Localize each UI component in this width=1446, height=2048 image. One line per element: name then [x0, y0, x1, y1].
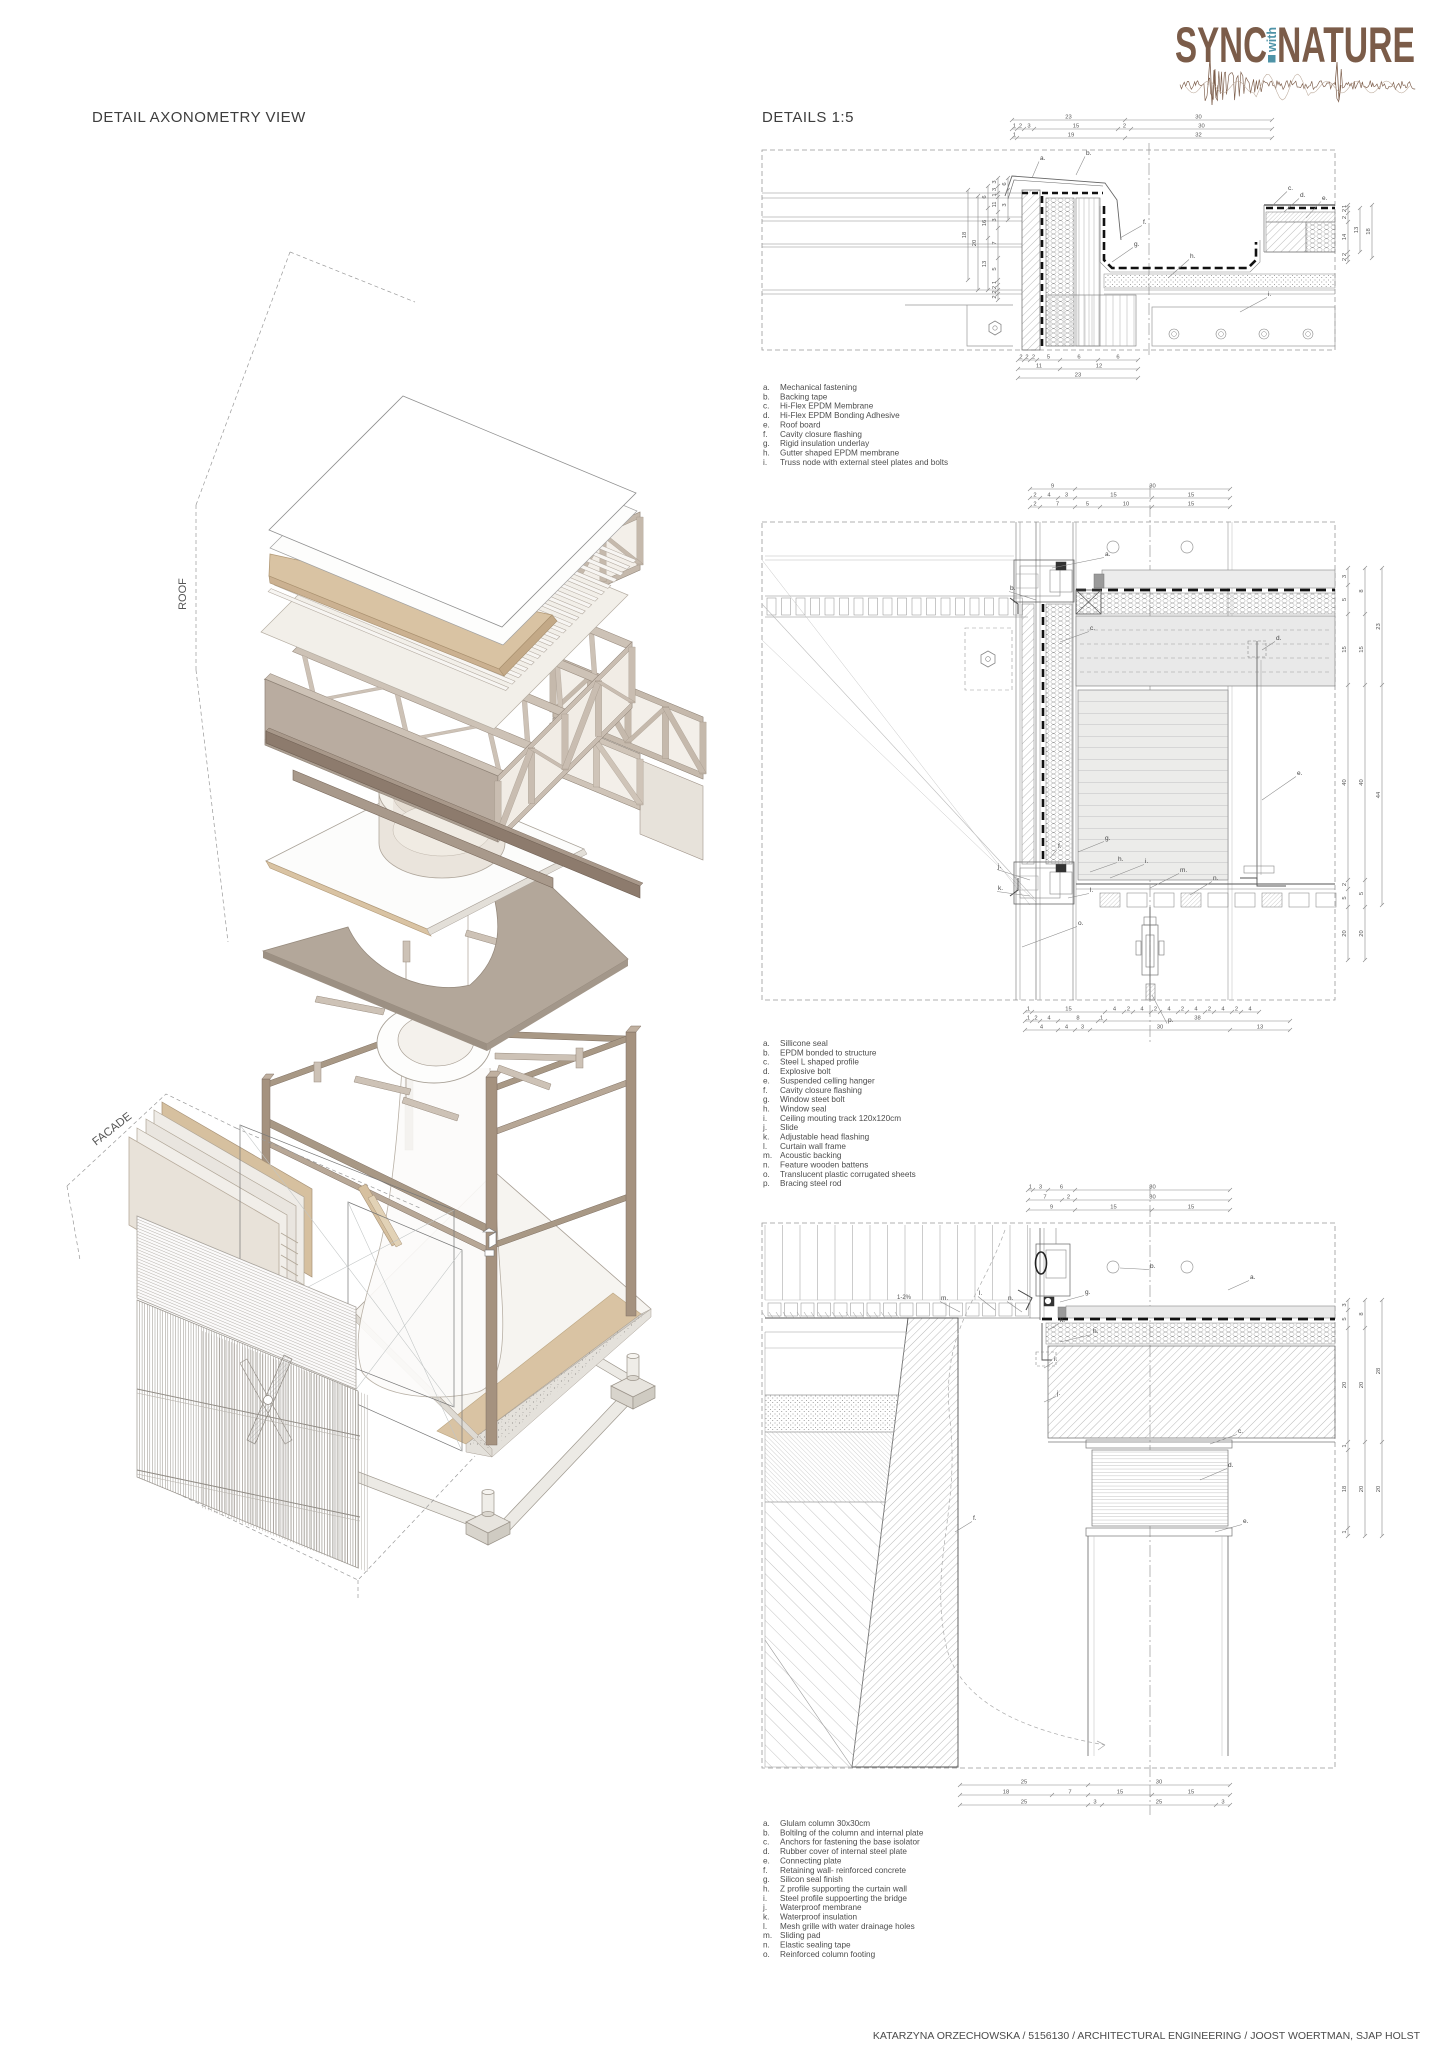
svg-text:3: 3: [992, 180, 998, 183]
svg-text:with: with: [1265, 27, 1279, 53]
svg-text:Window seal: Window seal: [780, 1105, 827, 1114]
svg-text:b.: b.: [763, 392, 770, 401]
svg-text:l.: l.: [763, 1142, 767, 1151]
svg-text:g.: g.: [1085, 1289, 1091, 1296]
svg-text:Adjustable head flashing: Adjustable head flashing: [780, 1133, 870, 1142]
svg-text:3: 3: [1002, 203, 1008, 206]
svg-text:d.: d.: [1228, 1462, 1234, 1469]
svg-text:n.: n.: [1213, 875, 1219, 882]
svg-text:Retaining wall- reinforced con: Retaining wall- reinforced concrete: [780, 1866, 907, 1875]
svg-text:20: 20: [972, 240, 978, 246]
svg-text:Ceiling mouting track 120x120c: Ceiling mouting track 120x120cm: [780, 1114, 901, 1123]
svg-text:3: 3: [992, 188, 998, 191]
svg-text:m.: m.: [763, 1931, 772, 1940]
svg-text:23: 23: [1376, 623, 1382, 629]
svg-text:a.: a.: [1250, 1274, 1256, 1281]
svg-text:30: 30: [1149, 1194, 1155, 1200]
svg-text:11: 11: [1036, 363, 1042, 369]
svg-text:30: 30: [1198, 123, 1204, 129]
svg-text:Reinforced column footing: Reinforced column footing: [780, 1950, 876, 1959]
svg-text:7: 7: [1068, 1789, 1071, 1795]
svg-text:j.: j.: [1056, 1390, 1060, 1397]
svg-text:e.: e.: [763, 420, 770, 429]
svg-text:NATURE: NATURE: [1277, 17, 1415, 73]
svg-text:2: 2: [992, 286, 998, 289]
svg-text:Curtain wall frame: Curtain wall frame: [780, 1142, 846, 1151]
svg-text:f.: f.: [1143, 219, 1147, 226]
svg-text:a.: a.: [1105, 551, 1111, 558]
svg-text:1: 1: [1100, 1015, 1103, 1021]
svg-text:i.: i.: [1145, 858, 1148, 865]
svg-text:7: 7: [1056, 501, 1059, 507]
svg-text:b.: b.: [1086, 150, 1092, 157]
svg-text:1: 1: [1013, 132, 1016, 138]
svg-text:5: 5: [1342, 896, 1348, 899]
svg-text:o.: o.: [763, 1170, 770, 1179]
svg-text:13: 13: [1257, 1024, 1263, 1030]
svg-text:1: 1: [1027, 1006, 1030, 1012]
svg-text:g.: g.: [1134, 241, 1140, 248]
svg-text:Bracing steel rod: Bracing steel rod: [780, 1179, 842, 1188]
svg-text:DETAIL AXONOMETRY VIEW: DETAIL AXONOMETRY VIEW: [92, 109, 306, 126]
svg-text:23: 23: [1075, 372, 1081, 378]
svg-text:g.: g.: [763, 439, 770, 448]
svg-text:Roof board: Roof board: [780, 420, 821, 429]
svg-text:14: 14: [1342, 233, 1348, 240]
svg-text:Z profile supporting the curta: Z profile supporting the curtain wall: [780, 1885, 907, 1894]
svg-text:10: 10: [1123, 501, 1129, 507]
svg-text:6: 6: [1060, 1184, 1063, 1190]
svg-text:Window steet bolt: Window steet bolt: [780, 1095, 845, 1104]
svg-text:Hi-Flex EPDM Membrane: Hi-Flex EPDM Membrane: [780, 402, 874, 411]
svg-text:l.: l.: [763, 1922, 767, 1931]
svg-text:m.: m.: [1180, 867, 1187, 874]
svg-text:20: 20: [1359, 1486, 1365, 1492]
svg-text:1: 1: [1342, 1444, 1348, 1447]
svg-text:f.: f.: [1058, 843, 1062, 850]
svg-text:5: 5: [1086, 501, 1089, 507]
svg-text:e.: e.: [1322, 195, 1328, 202]
svg-text:h.: h.: [1190, 253, 1196, 260]
svg-text:Steel profile suppoerting the: Steel profile suppoerting the bridge: [780, 1894, 907, 1903]
svg-text:30: 30: [1149, 1184, 1155, 1190]
svg-text:2: 2: [1342, 883, 1348, 886]
svg-text:6: 6: [1077, 354, 1080, 360]
svg-text:2: 2: [1235, 1006, 1238, 1012]
svg-text:40: 40: [1359, 779, 1365, 785]
svg-text:c.: c.: [763, 1058, 769, 1067]
svg-text:Elastic sealing tape: Elastic sealing tape: [780, 1941, 851, 1950]
svg-text:a.: a.: [763, 383, 770, 392]
svg-text:30: 30: [1157, 1024, 1163, 1030]
svg-text:8: 8: [1076, 1015, 1079, 1021]
svg-text:e.: e.: [763, 1076, 770, 1085]
svg-text:1: 1: [1342, 1530, 1348, 1533]
svg-text:3: 3: [1081, 1024, 1084, 1030]
svg-text:5: 5: [992, 267, 998, 270]
svg-text:Waterproof insulation: Waterproof insulation: [780, 1913, 858, 1922]
svg-text:3: 3: [1221, 1799, 1224, 1805]
svg-text:8: 8: [1359, 1312, 1365, 1315]
svg-text:j.: j.: [762, 1123, 767, 1132]
svg-text:Connecting plate: Connecting plate: [780, 1856, 842, 1865]
svg-text:h.: h.: [763, 448, 770, 457]
svg-text:e.: e.: [763, 1856, 770, 1865]
svg-text:3: 3: [992, 218, 998, 221]
svg-text:15: 15: [1188, 492, 1194, 498]
svg-text:9: 9: [1051, 483, 1054, 489]
svg-text:Mesh grille with water drainag: Mesh grille with water drainage holes: [780, 1922, 915, 1931]
svg-text:1: 1: [1029, 1184, 1032, 1190]
svg-text:d.: d.: [763, 1067, 770, 1076]
svg-text:2: 2: [1032, 354, 1035, 360]
svg-text:38: 38: [1194, 1015, 1200, 1021]
svg-text:d.: d.: [1276, 635, 1282, 642]
svg-text:25: 25: [1156, 1799, 1162, 1805]
svg-text:i.: i.: [763, 458, 767, 467]
svg-text:1-2%: 1-2%: [897, 1295, 912, 1301]
svg-text:15: 15: [1110, 492, 1116, 498]
svg-text:6: 6: [1116, 354, 1119, 360]
svg-text:15: 15: [1188, 1204, 1194, 1210]
svg-text:Sliding pad: Sliding pad: [780, 1931, 821, 1940]
svg-text:ROOF: ROOF: [177, 578, 189, 610]
svg-text:Gutter shaped EPDM membrane: Gutter shaped EPDM membrane: [780, 448, 900, 457]
svg-text:Sillicone seal: Sillicone seal: [780, 1039, 828, 1048]
svg-text:l.: l.: [1090, 887, 1093, 894]
svg-text:2: 2: [1019, 354, 1022, 360]
svg-text:15: 15: [1073, 123, 1079, 129]
svg-text:15: 15: [1342, 646, 1348, 652]
svg-text:Anchors for fastening the base: Anchors for fastening the base isolator: [780, 1838, 920, 1847]
svg-text:3: 3: [1342, 1303, 1348, 1306]
svg-text:9: 9: [1050, 1204, 1053, 1210]
svg-text:e.: e.: [1243, 1518, 1249, 1525]
svg-text:8: 8: [1359, 589, 1365, 592]
svg-text:i.: i.: [1054, 1356, 1057, 1363]
svg-text:6: 6: [1002, 182, 1008, 185]
svg-text:m.: m.: [941, 1295, 948, 1302]
svg-text:b.: b.: [1010, 585, 1016, 592]
svg-text:c.: c.: [763, 402, 769, 411]
svg-text:Backing tape: Backing tape: [780, 392, 828, 401]
svg-text:40: 40: [1342, 779, 1348, 785]
svg-text:15: 15: [1117, 1789, 1123, 1795]
svg-text:b.: b.: [763, 1828, 770, 1837]
svg-text:k.: k.: [763, 1913, 769, 1922]
svg-text:Rubber cover of internal steel: Rubber cover of internal steel plate: [780, 1847, 907, 1856]
svg-text:n.: n.: [763, 1941, 770, 1950]
svg-text:5: 5: [1342, 598, 1348, 601]
svg-text:2: 2: [1181, 1006, 1184, 1012]
svg-text:d.: d.: [763, 1847, 770, 1856]
svg-text:Steel L shaped profile: Steel L shaped profile: [780, 1058, 859, 1067]
svg-text:c.: c.: [1288, 185, 1293, 192]
svg-text:20: 20: [1359, 1382, 1365, 1388]
svg-text:30: 30: [1149, 483, 1155, 489]
svg-text:k.: k.: [1060, 1317, 1065, 1324]
svg-text:h.: h.: [763, 1885, 770, 1894]
svg-text:20: 20: [1359, 930, 1365, 936]
svg-text:o.: o.: [763, 1950, 770, 1959]
svg-text:Hi-Flex EPDM Bonding Adhesive: Hi-Flex EPDM Bonding Adhesive: [780, 411, 900, 420]
svg-text:2: 2: [1154, 1006, 1157, 1012]
svg-text:3: 3: [1342, 575, 1348, 578]
svg-text:o.: o.: [1078, 920, 1084, 927]
svg-text:i.: i.: [1268, 291, 1271, 298]
svg-text:2: 2: [1034, 1015, 1037, 1021]
svg-text:a.: a.: [1040, 155, 1046, 162]
svg-text:j.: j.: [762, 1903, 767, 1912]
svg-text:2: 2: [1342, 253, 1348, 256]
svg-text:EPDM bonded to structure: EPDM bonded to structure: [780, 1048, 877, 1057]
svg-text:a.: a.: [763, 1039, 770, 1048]
svg-text:c.: c.: [1238, 1428, 1243, 1435]
svg-text:30: 30: [1195, 114, 1201, 120]
svg-text:b.: b.: [763, 1048, 770, 1057]
svg-text:3: 3: [1093, 1799, 1096, 1805]
svg-text:18: 18: [1366, 228, 1372, 234]
svg-text:c.: c.: [763, 1838, 769, 1847]
svg-text:20: 20: [1342, 1382, 1348, 1388]
svg-text:k.: k.: [763, 1133, 769, 1142]
svg-text:3: 3: [1039, 1184, 1042, 1190]
svg-text:5: 5: [1047, 354, 1050, 360]
svg-text:Translucent plastic corrugated: Translucent plastic corrugated sheets: [780, 1170, 916, 1179]
svg-text:15: 15: [1188, 1789, 1194, 1795]
svg-text:h.: h.: [763, 1105, 770, 1114]
svg-text:i.: i.: [763, 1114, 767, 1123]
svg-text:20: 20: [1342, 930, 1348, 936]
svg-text:k.: k.: [998, 885, 1003, 892]
svg-text:p.: p.: [763, 1179, 770, 1188]
svg-text:16: 16: [982, 220, 988, 226]
svg-text:Suspended celling hanger: Suspended celling hanger: [780, 1076, 875, 1085]
svg-text:2: 2: [1033, 501, 1036, 507]
svg-text:11: 11: [992, 201, 998, 207]
svg-text:Rigid insulation underlay: Rigid insulation underlay: [780, 439, 870, 448]
svg-text:6: 6: [982, 195, 988, 198]
svg-text:15: 15: [1359, 646, 1365, 652]
svg-text:Explosive bolt: Explosive bolt: [780, 1067, 831, 1076]
svg-text:2: 2: [992, 295, 998, 298]
svg-text:3: 3: [1027, 123, 1030, 129]
svg-text:13: 13: [982, 261, 988, 267]
svg-text:1: 1: [1013, 123, 1016, 129]
svg-text:32: 32: [1195, 132, 1201, 138]
svg-text:l.: l.: [979, 1290, 982, 1297]
svg-text:2: 2: [1033, 492, 1036, 498]
svg-text:c.: c.: [1090, 625, 1095, 632]
svg-text:g.: g.: [1105, 835, 1111, 842]
svg-text:2: 2: [1208, 1006, 1211, 1012]
svg-text:13: 13: [1354, 227, 1360, 233]
svg-text:7: 7: [1043, 1194, 1046, 1200]
svg-text:SYNC: SYNC: [1175, 17, 1267, 73]
svg-text:25: 25: [1021, 1799, 1027, 1805]
svg-text:2: 2: [1019, 123, 1022, 129]
svg-text:18: 18: [1342, 1486, 1348, 1492]
svg-text:15: 15: [1110, 1204, 1116, 1210]
svg-text:f.: f.: [763, 1086, 768, 1095]
svg-text:Waterproof membrane: Waterproof membrane: [780, 1903, 862, 1912]
svg-text:h.: h.: [1118, 856, 1124, 863]
svg-text:m.: m.: [763, 1151, 772, 1160]
svg-text:e.: e.: [1297, 770, 1303, 777]
svg-text:18: 18: [1003, 1789, 1009, 1795]
svg-text:Cavity closure flashing: Cavity closure flashing: [780, 430, 862, 439]
svg-text:i.: i.: [763, 1894, 767, 1903]
svg-text:7: 7: [992, 241, 998, 244]
svg-text:25: 25: [1021, 1779, 1027, 1785]
svg-text:p.: p.: [1168, 1017, 1174, 1024]
svg-text:19: 19: [1068, 132, 1074, 138]
svg-text:d.: d.: [763, 411, 770, 420]
svg-text:2: 2: [1342, 216, 1348, 219]
svg-text:j.: j.: [997, 863, 1001, 870]
svg-text:20: 20: [1376, 1486, 1382, 1492]
svg-text:1: 1: [1027, 1015, 1030, 1021]
svg-text:44: 44: [1376, 791, 1382, 798]
svg-text:h.: h.: [1093, 1328, 1099, 1335]
svg-text:18: 18: [962, 232, 968, 238]
svg-text:d.: d.: [1300, 192, 1306, 199]
svg-text:n.: n.: [763, 1161, 770, 1170]
svg-text:KATARZYNA ORZECHOWSKA / 515613: KATARZYNA ORZECHOWSKA / 5156130 / ARCHIT…: [873, 2030, 1421, 2042]
svg-text:5: 5: [1342, 1317, 1348, 1320]
svg-text:15: 15: [1188, 501, 1194, 507]
svg-text:Boltilng of the column and int: Boltilng of the column and internal plat…: [780, 1828, 924, 1837]
svg-text:2: 2: [1067, 1194, 1070, 1200]
svg-text:Cavity closure flashing: Cavity closure flashing: [780, 1086, 862, 1095]
svg-text:f.: f.: [973, 1515, 977, 1522]
svg-text:Feature wooden battens: Feature wooden battens: [780, 1161, 868, 1170]
svg-text:f.: f.: [763, 430, 768, 439]
svg-text:DETAILS 1:5: DETAILS 1:5: [762, 109, 854, 126]
svg-text:n.: n.: [1008, 1295, 1014, 1302]
svg-text:2: 2: [1342, 209, 1348, 212]
svg-text:g.: g.: [763, 1875, 770, 1884]
svg-text:5: 5: [1359, 892, 1365, 895]
svg-text:2: 2: [1342, 258, 1348, 261]
svg-text:Truss node with external steel: Truss node with external steel plates an…: [780, 458, 948, 467]
svg-text:2: 2: [1025, 354, 1028, 360]
svg-text:15: 15: [1065, 1006, 1071, 1012]
svg-text:f.: f.: [763, 1866, 768, 1875]
svg-text:Acoustic backing: Acoustic backing: [780, 1151, 842, 1160]
svg-text:12: 12: [1096, 363, 1102, 369]
svg-text:30: 30: [1156, 1779, 1162, 1785]
svg-text:1: 1: [992, 281, 998, 284]
svg-text:b.: b.: [1150, 1263, 1156, 1270]
svg-text:28: 28: [1376, 1368, 1382, 1374]
svg-text:Silicon seal finish: Silicon seal finish: [780, 1875, 843, 1884]
svg-text:2: 2: [1127, 1006, 1130, 1012]
svg-text:a.: a.: [763, 1819, 770, 1828]
svg-text:g.: g.: [763, 1095, 770, 1104]
svg-text:23: 23: [1065, 114, 1071, 120]
svg-text:Glulam column 30x30cm: Glulam column 30x30cm: [780, 1819, 870, 1828]
svg-text:3: 3: [1065, 492, 1068, 498]
svg-text:2: 2: [1123, 123, 1126, 129]
svg-text:Slide: Slide: [780, 1123, 799, 1132]
svg-text:Mechanical fastening: Mechanical fastening: [780, 383, 857, 392]
